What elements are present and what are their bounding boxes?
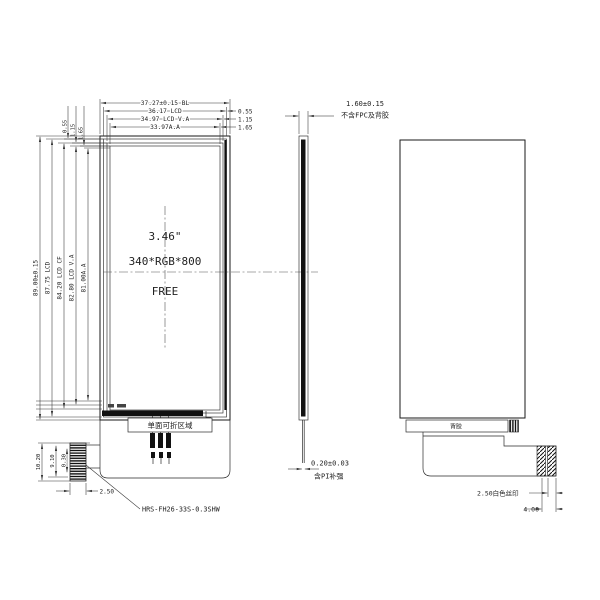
dim-aa-height: 81.00A.A [81, 263, 88, 292]
left-inset-dimensions: 0.55 1.15 1.65 [63, 106, 111, 146]
dim-left-inset-1: 0.55 [63, 120, 69, 133]
side-glass-fill [301, 140, 306, 417]
adhesive-strip: 背胶 [406, 420, 519, 432]
dim-va-height: 82.80 LCD V.A [69, 254, 76, 301]
height-dimensions: 89.00±0.15 87.75 LCD 84.20 LCD CF 82.80 … [33, 136, 111, 420]
connector-part-number: HRS-FH26-33S-0.3SHW [142, 506, 221, 514]
display-mode: FREE [152, 285, 179, 298]
silkscreen-extension-lines [542, 478, 556, 512]
dim-va-width: 34.97 LCD V.A [141, 116, 190, 123]
dim-aa-width: 33.97A.A [150, 124, 180, 131]
dim-bl-width: 37.27±0.15 BL [141, 100, 190, 107]
back-connector-hatch [537, 446, 546, 476]
fpc-thickness-dimension: 0.20±0.03 含PI补强 [288, 460, 349, 481]
display-area-text: 3.46" 340*RGB*800 FREE [129, 230, 202, 298]
silkscreen-dimensions: 2.50白色丝印 4.00 [477, 478, 563, 514]
tiny-print-marks [117, 404, 126, 408]
dim-lcd-height: 87.75 LCD [45, 261, 52, 294]
tiny-print-marks [108, 404, 114, 408]
display-resolution: 340*RGB*800 [129, 255, 202, 268]
adhesive-label: 背胶 [450, 423, 462, 431]
fold-area-label: 单面可折区域 [148, 420, 193, 430]
right-inset-dimensions: 0.55 1.15 1.65 [221, 108, 253, 131]
dim-1020: 10.20 [36, 454, 42, 471]
pull-tab-hatch [510, 420, 519, 432]
fpc-dim: 0.20±0.03 [311, 460, 349, 468]
thickness-note: 不含FPC及背胶 [341, 111, 389, 120]
bracket-mark [206, 411, 211, 418]
dim-left-inset-3: 1.65 [79, 127, 85, 140]
fpc-note: 含PI补强 [314, 472, 343, 481]
dim-910: 9.10 [50, 454, 56, 467]
dim-030: 0.30 [62, 454, 68, 467]
dim-cf-height: 84.20 LCD CF [57, 256, 64, 300]
side-view: 1.60±0.15 不含FPC及背胶 0.20±0.03 含PI补强 [285, 100, 389, 481]
dim-left-inset-2: 1.15 [71, 124, 77, 137]
dim-bl-height: 89.00±0.15 [33, 260, 40, 297]
silkscreen-dim: 2.50白色丝印 [477, 489, 519, 498]
top-dimensions: 37.27±0.15 BL 36.17 LCD 34.97 LCD V.A 33… [100, 99, 230, 144]
back-view: 背胶 2.50白色丝印 4.00 [400, 140, 563, 514]
dim-right-inset-3: 1.65 [238, 124, 253, 131]
leader-line [86, 465, 140, 509]
front-view: 3.46" 340*RGB*800 FREE 37.27±0.15 BL 36.… [33, 99, 319, 514]
fpc-connector [70, 443, 86, 481]
dim-right-inset-1: 0.55 [238, 108, 253, 115]
thickness-dimension: 1.60±0.15 不含FPC及背胶 [285, 100, 389, 134]
connector-width-dim: 4.00 [523, 506, 539, 514]
bonding-bar [102, 411, 203, 417]
dim-lcd-width: 36.17 LCD [148, 108, 182, 115]
display-size: 3.46" [148, 230, 181, 243]
drawing-page: 3.46" 340*RGB*800 FREE 37.27±0.15 BL 36.… [0, 0, 600, 600]
thickness-dim: 1.60±0.15 [346, 100, 384, 108]
dim-right-inset-2: 1.15 [238, 116, 253, 123]
back-outline [400, 140, 525, 418]
dim-250: 2.50 [100, 489, 115, 496]
fpc-tail-outline [423, 432, 556, 476]
back-connector-hatch [548, 446, 557, 476]
technical-drawing: 3.46" 340*RGB*800 FREE 37.27±0.15 BL 36.… [0, 0, 600, 600]
